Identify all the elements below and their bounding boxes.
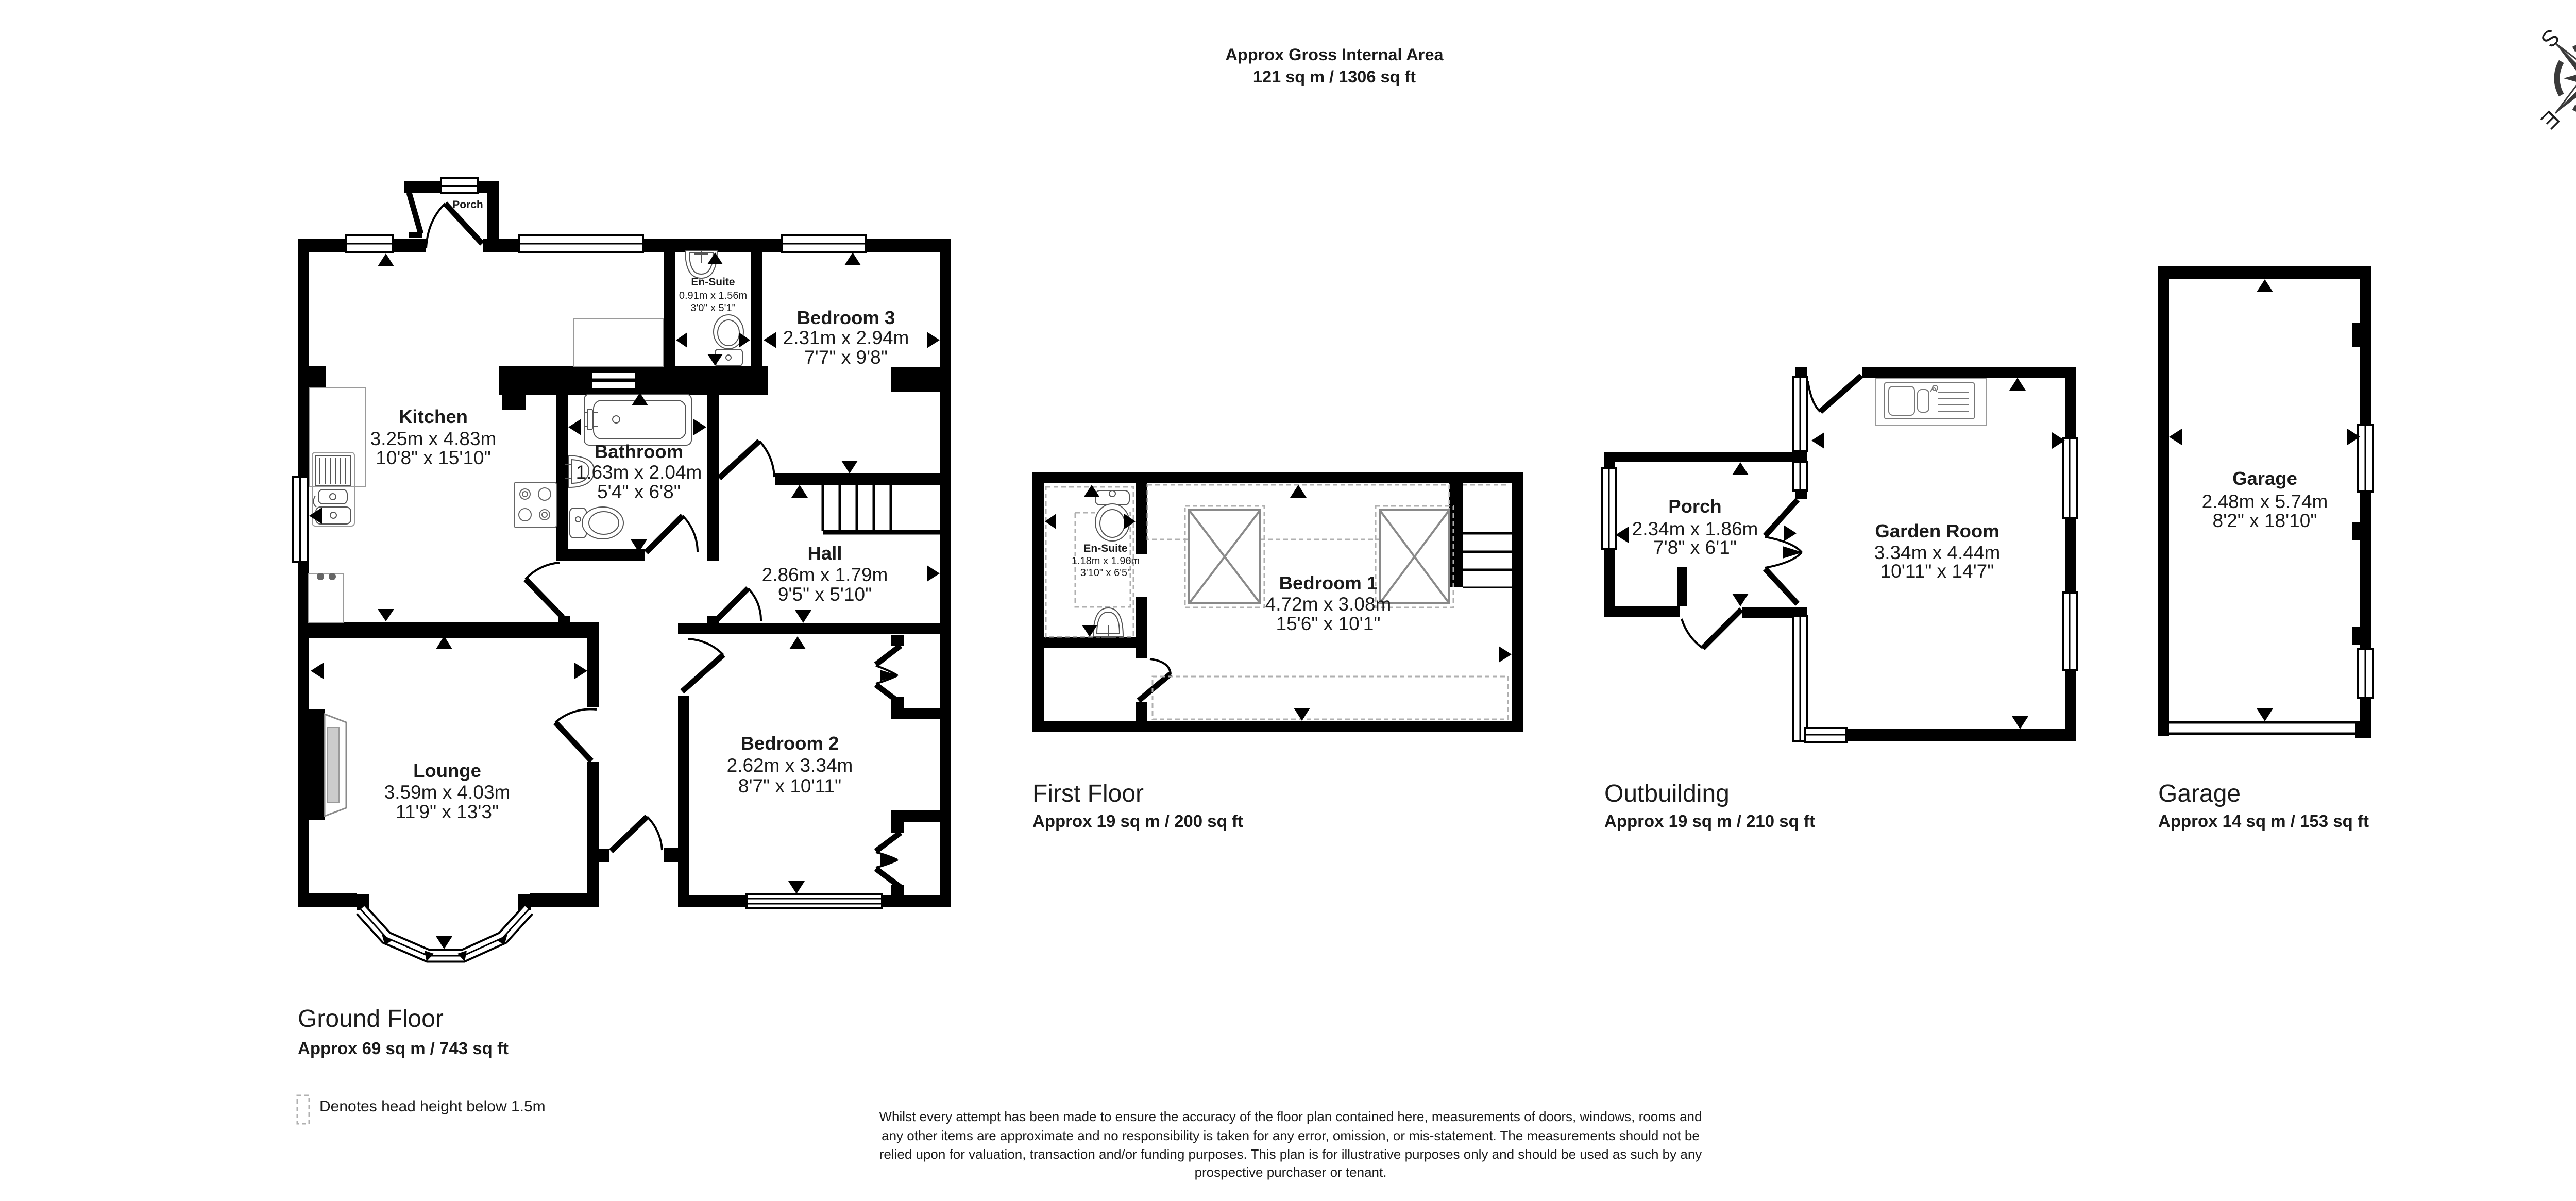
svg-text:En-Suite: En-Suite bbox=[691, 276, 735, 288]
svg-text:First Floor: First Floor bbox=[1032, 780, 1144, 807]
svg-text:15'6" x 10'1": 15'6" x 10'1" bbox=[1276, 613, 1381, 634]
svg-text:Bathroom: Bathroom bbox=[595, 441, 683, 462]
svg-text:Porch: Porch bbox=[452, 199, 483, 211]
svg-text:121 sq m / 1306 sq ft: 121 sq m / 1306 sq ft bbox=[1253, 67, 1416, 86]
svg-text:2.86m x 1.79m: 2.86m x 1.79m bbox=[762, 564, 888, 585]
svg-text:Garage: Garage bbox=[2232, 468, 2297, 489]
svg-text:Kitchen: Kitchen bbox=[399, 406, 468, 427]
svg-text:Approx 69 sq m / 743 sq ft: Approx 69 sq m / 743 sq ft bbox=[298, 1039, 509, 1058]
svg-text:3.59m x 4.03m: 3.59m x 4.03m bbox=[384, 782, 511, 803]
svg-text:Ground Floor: Ground Floor bbox=[298, 1005, 444, 1033]
svg-text:10'8" x 15'10": 10'8" x 15'10" bbox=[376, 447, 491, 468]
svg-text:Approx 19 sq m / 210 sq ft: Approx 19 sq m / 210 sq ft bbox=[1604, 811, 1815, 831]
svg-text:Garage: Garage bbox=[2158, 780, 2241, 807]
svg-text:11'9" x 13'3": 11'9" x 13'3" bbox=[396, 801, 499, 822]
svg-text:1.18m x 1.96m: 1.18m x 1.96m bbox=[1072, 555, 1140, 567]
svg-text:prospective purchaser or tenan: prospective purchaser or tenant. bbox=[1195, 1164, 1387, 1180]
svg-text:3'10" x 6'5": 3'10" x 6'5" bbox=[1080, 567, 1131, 579]
svg-text:0.91m x 1.56m: 0.91m x 1.56m bbox=[679, 290, 747, 301]
svg-text:Hall: Hall bbox=[808, 543, 842, 564]
svg-text:Approx 19 sq m / 200 sq ft: Approx 19 sq m / 200 sq ft bbox=[1032, 811, 1243, 831]
svg-text:2.62m x 3.34m: 2.62m x 3.34m bbox=[727, 755, 853, 776]
svg-text:10'11" x 14'7": 10'11" x 14'7" bbox=[1880, 561, 1994, 582]
svg-text:8'7" x 10'11": 8'7" x 10'11" bbox=[738, 775, 841, 797]
svg-text:3'0" x 5'1": 3'0" x 5'1" bbox=[690, 302, 735, 314]
svg-text:Porch: Porch bbox=[1668, 496, 1721, 517]
svg-text:Denotes head height below 1.5m: Denotes head height below 1.5m bbox=[319, 1098, 546, 1115]
svg-text:2.31m x 2.94m: 2.31m x 2.94m bbox=[783, 327, 909, 348]
svg-text:En-Suite: En-Suite bbox=[1083, 543, 1127, 554]
svg-text:Lounge: Lounge bbox=[413, 760, 481, 781]
svg-text:7'8" x 6'1": 7'8" x 6'1" bbox=[1653, 537, 1737, 558]
svg-text:7'7" x 9'8": 7'7" x 9'8" bbox=[804, 347, 888, 368]
svg-text:Outbuilding: Outbuilding bbox=[1604, 780, 1730, 807]
svg-text:Whilst every attempt has been: Whilst every attempt has been made to en… bbox=[879, 1109, 1702, 1124]
svg-text:Approx 14 sq m / 153 sq ft: Approx 14 sq m / 153 sq ft bbox=[2158, 811, 2369, 831]
svg-text:Bedroom 3: Bedroom 3 bbox=[797, 307, 895, 328]
svg-text:2.48m x 5.74m: 2.48m x 5.74m bbox=[2202, 491, 2328, 512]
svg-text:2.34m x 1.86m: 2.34m x 1.86m bbox=[1632, 518, 1758, 539]
svg-text:Approx Gross Internal Area: Approx Gross Internal Area bbox=[1225, 45, 1444, 64]
svg-text:relied upon for valuation, tra: relied upon for valuation, transaction a… bbox=[879, 1146, 1702, 1162]
svg-text:Bedroom 1: Bedroom 1 bbox=[1279, 572, 1378, 594]
svg-text:9'5" x 5'10": 9'5" x 5'10" bbox=[778, 584, 872, 605]
svg-text:3.25m x 4.83m: 3.25m x 4.83m bbox=[370, 428, 497, 449]
svg-text:Bedroom 2: Bedroom 2 bbox=[741, 733, 839, 754]
svg-text:Garden Room: Garden Room bbox=[1875, 520, 1999, 542]
svg-text:4.72m x 3.08m: 4.72m x 3.08m bbox=[1265, 594, 1392, 615]
svg-text:1.63m x 2.04m: 1.63m x 2.04m bbox=[576, 462, 702, 483]
svg-text:any other items are approximat: any other items are approximate and no r… bbox=[882, 1128, 1700, 1143]
svg-text:3.34m x 4.44m: 3.34m x 4.44m bbox=[1874, 542, 2001, 563]
svg-text:8'2" x 18'10": 8'2" x 18'10" bbox=[2213, 510, 2317, 531]
svg-text:5'4" x 6'8": 5'4" x 6'8" bbox=[597, 481, 681, 502]
